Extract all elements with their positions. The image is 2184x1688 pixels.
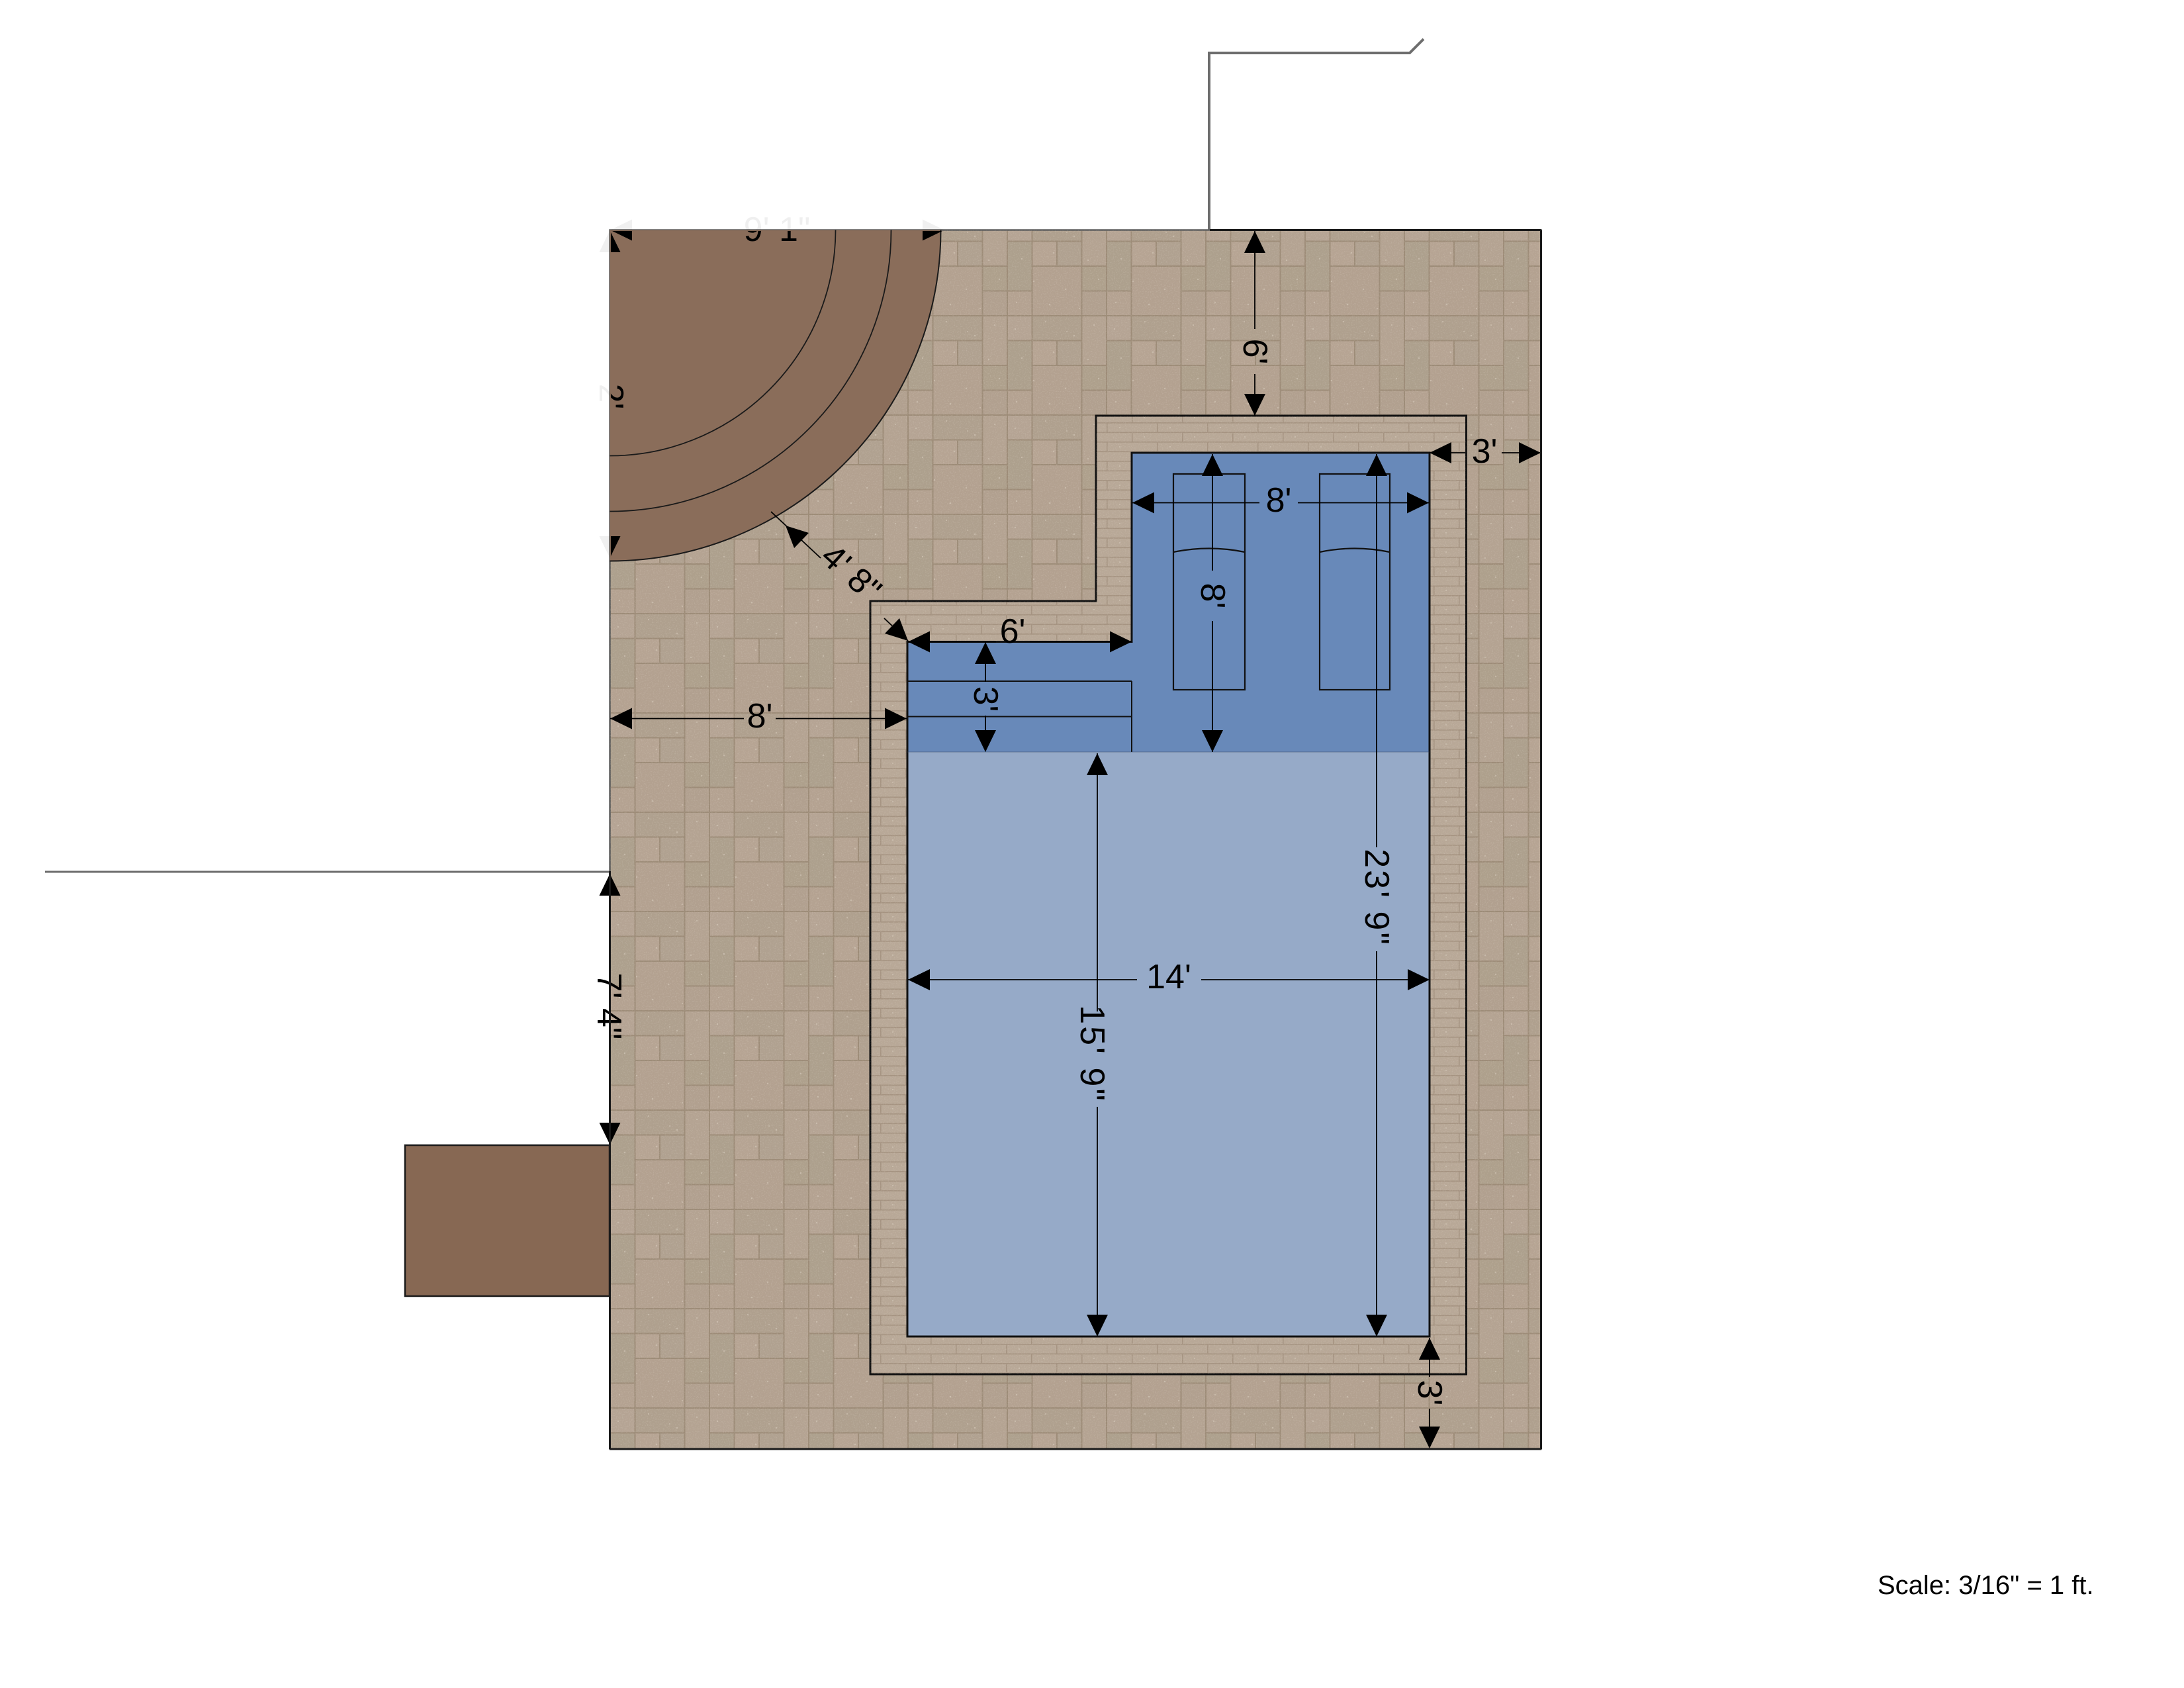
svg-text:Scale: 3/16" = 1 ft.: Scale: 3/16" = 1 ft. xyxy=(1878,1571,2094,1600)
svg-text:8': 8' xyxy=(1193,583,1232,609)
svg-text:23' 9": 23' 9" xyxy=(1357,849,1396,947)
svg-text:6': 6' xyxy=(1236,339,1274,365)
svg-text:6': 6' xyxy=(1000,612,1026,651)
svg-text:3': 3' xyxy=(966,686,1005,712)
svg-text:3': 3' xyxy=(1410,1380,1449,1406)
svg-text:14': 14' xyxy=(1146,958,1191,996)
svg-text:3': 3' xyxy=(1472,432,1498,471)
svg-text:8': 8' xyxy=(747,697,773,735)
svg-text:8': 8' xyxy=(1266,481,1292,520)
svg-text:15' 9": 15' 9" xyxy=(1073,1005,1111,1103)
